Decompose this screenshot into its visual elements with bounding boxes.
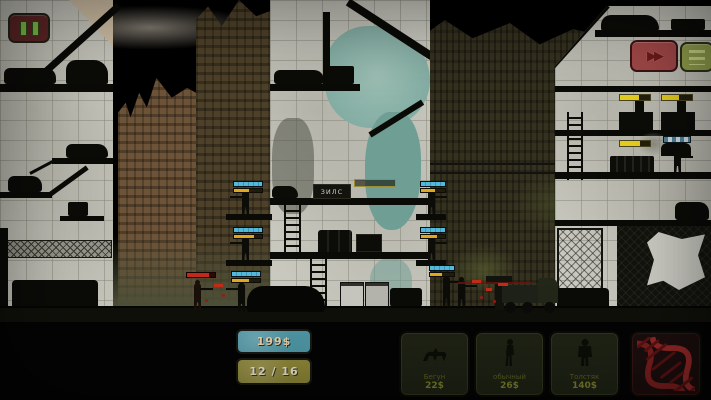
floor-beam [270,252,430,259]
unit-card-label: обычный [493,373,526,381]
platform [226,260,272,266]
pause-icon [20,21,27,36]
unit-card-price: 140$ [572,381,597,392]
unit-count-badge: 12 / 16 [236,358,312,385]
soldier-health-bar [231,271,261,283]
rifle [434,242,447,244]
catwalk [428,172,556,174]
soldier [672,148,683,172]
rifle [680,156,693,158]
catwalk [428,163,556,165]
zombie-arm [200,288,213,290]
gun-barrel [29,160,53,175]
ladder [567,112,583,180]
floor-beam [0,84,113,92]
muzzle-flash [472,280,481,283]
menu-button[interactable] [680,42,711,72]
junk-pile [675,202,709,220]
truck-cab [538,278,558,303]
blood-splatter [493,300,496,303]
ladder [284,205,301,252]
junk-pile [272,186,298,198]
bottle-shelf [610,156,654,172]
zombie [192,280,203,310]
enemy-health-bar [186,272,216,278]
soldier [441,273,452,307]
machine-health-bar [619,140,651,147]
blood-splatter [205,299,208,302]
edge-column [0,228,8,316]
blood-splatter [222,294,225,297]
dna-helix-icon [632,333,700,395]
wrecked-car [4,68,56,84]
junk-pile [66,144,108,158]
shelf-beam [60,216,104,221]
soldier-health-bar [420,181,446,193]
machine-health-bar [619,94,651,101]
shelf-beam [0,192,52,198]
abandoned-car [247,286,325,312]
soldier-health-bar [233,181,263,193]
truck-wheel [505,302,516,313]
muzzle-flash [498,283,508,286]
machinery [12,280,98,306]
platform [416,214,446,220]
support-strut [49,165,89,196]
list-icon [689,50,705,65]
building-center: ЗИЛС [270,0,430,316]
fast-forward-button[interactable]: ▶▶ [630,40,678,72]
fast-forward-icon: ▶▶ [647,50,661,63]
junk-pile [274,70,324,84]
generator [661,112,695,130]
floor-beam [555,86,711,92]
soldier-health-bar [420,227,446,239]
wrecked-car [601,15,659,30]
wall-crack [647,232,705,290]
unit-card-label: Толстяк [570,373,599,381]
wire-mesh [0,240,112,258]
unit-card-price: 26$ [500,381,519,392]
floor-beam [270,84,360,91]
platform [226,214,272,220]
pause-icon [32,21,39,36]
money-badge: 199$ [236,329,312,354]
soldier [236,280,247,312]
washing-machine [340,282,364,309]
floor-beam [595,30,711,37]
money-value: 199$ [257,335,292,348]
floor-beam [270,198,430,205]
barricade-health-bar [663,136,691,143]
game-screen: ЗИЛС [0,0,711,400]
soldier-health-bar [429,265,455,277]
rifle [226,288,239,290]
barrels [318,230,352,252]
unit-card-walker[interactable]: обычный 26$ [474,331,545,397]
walker-zombie-icon [476,333,543,373]
blood-splatter [480,296,483,299]
wrecked-car [66,60,108,84]
truck-wheel [544,302,555,313]
crates [356,234,382,252]
billboard-text: ЗИЛС [321,188,343,196]
muzzle-flash [486,288,492,291]
shelf-beam [52,158,113,164]
mounted-gun [8,176,42,192]
truck-wheel [522,302,533,313]
rifle [230,242,243,244]
unit-card-brute[interactable]: Толстяк 140$ [549,331,620,397]
brute-zombie-icon [551,333,618,373]
crate [68,202,88,216]
machine-health-bar [661,94,693,101]
building-left [0,0,113,316]
furniture [390,288,422,307]
unit-card-price: 22$ [425,381,444,392]
rifle [464,285,477,287]
bench [671,19,705,30]
washing-machine [365,282,389,309]
rifle [230,196,243,198]
truck-bed [502,285,540,303]
machinery [557,288,609,308]
empty-health-bar [354,179,396,187]
soldier-health-bar [233,227,263,239]
tracer-line [458,282,532,284]
floor-beam [555,172,711,179]
unit-card-label: Бегун [424,373,446,381]
muzzle-flash [214,284,223,287]
billboard: ЗИЛС [313,184,351,199]
runner-zombie-icon [401,333,468,373]
unit-card-dna[interactable] [630,331,702,397]
pause-button[interactable] [8,13,50,43]
unit-card-runner[interactable]: Бегун 22$ [399,331,470,397]
generator [619,112,653,130]
unit-count-value: 12 / 16 [249,365,298,378]
chain-link-fence [557,228,603,290]
rifle [434,196,447,198]
table [328,66,354,84]
